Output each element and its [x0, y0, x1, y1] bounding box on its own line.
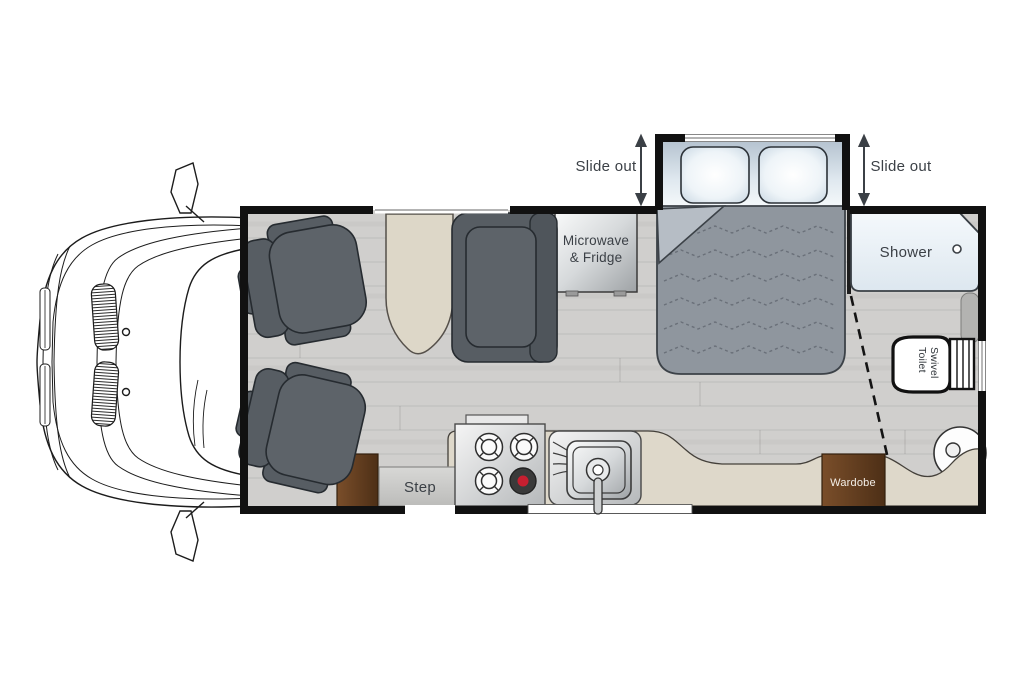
cab-grille-vent [91, 361, 119, 427]
cab-mirror-top [171, 163, 198, 213]
svg-text:Toilet: Toilet [916, 347, 928, 373]
step-label: Step [404, 479, 436, 496]
slide-out-label-right: Slide out [870, 158, 932, 175]
sink-faucet-stem [594, 478, 602, 514]
bathroom-partition-cap [961, 293, 979, 343]
stove [455, 415, 545, 506]
rv-floorplan-canvas: Slide out Slide out Microwave & Fridge S… [0, 0, 1024, 683]
sofa [452, 213, 557, 362]
cab-grille-vent [91, 283, 120, 351]
toilet-tank [950, 339, 974, 389]
microwave-fridge-label-line1: Microwave [563, 233, 629, 248]
shower-label: Shower [880, 244, 933, 261]
entry-door-gap [405, 505, 455, 515]
wardrobe-label: Wardobe [830, 477, 876, 489]
bed-pillow [681, 147, 749, 203]
slide-out-arrow-left [637, 136, 646, 204]
slide-out-arrow-right [860, 136, 869, 204]
window-kitchen [528, 505, 692, 514]
bed-pillow [759, 147, 827, 203]
bed-slide-out [657, 140, 845, 374]
cab-mirror-bottom [171, 511, 198, 561]
dinette-table [386, 214, 453, 354]
svg-text:Swivel: Swivel [928, 347, 940, 379]
slide-out-label-left: Slide out [575, 158, 637, 175]
van-cab-front [37, 163, 252, 561]
shower-drain [953, 245, 961, 253]
bathroom-sink-drain [946, 443, 960, 457]
microwave-fridge-label-line2: & Fridge [570, 250, 623, 265]
